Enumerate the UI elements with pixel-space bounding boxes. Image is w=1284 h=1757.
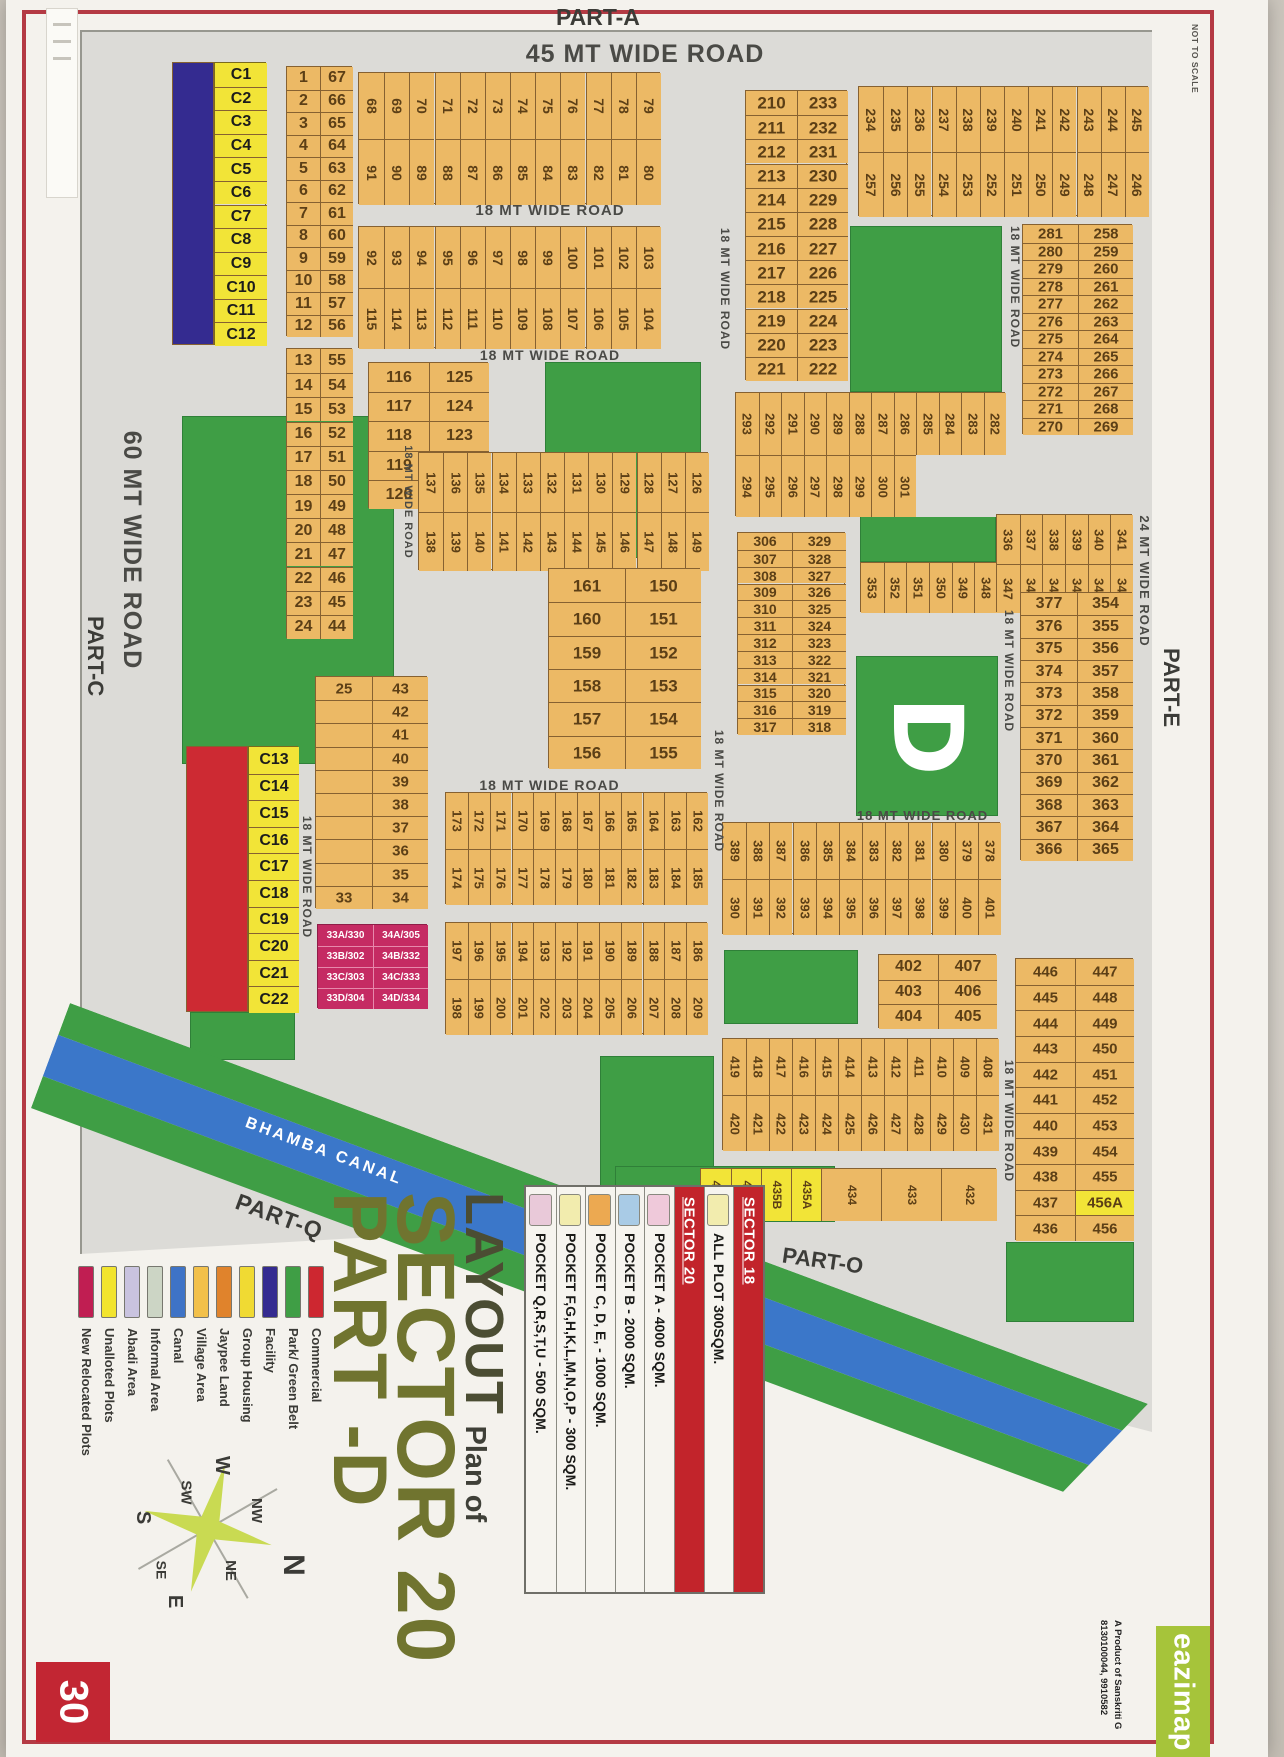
plot-cell: 289 (826, 393, 849, 455)
plot-cell: 262 (1078, 295, 1133, 313)
plot-cell: 359 (1077, 705, 1133, 727)
plot-cell: 403 (879, 980, 938, 1005)
plot-cell: 373 (1021, 682, 1077, 704)
plot-cell: 146 (612, 512, 636, 571)
plot-block-p258: 2812582802592792602782612772622762632752… (1022, 224, 1132, 434)
plot-cell: 260 (1078, 260, 1133, 278)
plot-cell: 172 (468, 793, 490, 849)
plot-cell: 19 (287, 494, 320, 518)
plot-cell: 401 (978, 879, 1001, 935)
scale-note: NOT TO SCALE (1186, 24, 1200, 104)
part-a-label: PART-A (556, 4, 640, 31)
plot-cell: 451 (1075, 1062, 1134, 1088)
plot-cell: 173 (446, 793, 468, 849)
plot-cell: 38 (372, 793, 428, 816)
plot-cell: 313 (738, 651, 792, 668)
plot-cell: 222 (797, 357, 848, 381)
plot-cell: 3 (287, 112, 320, 135)
plot-cell: 269 (1078, 418, 1133, 436)
plot-cell (316, 793, 372, 816)
plot-cell: 92 (359, 227, 384, 288)
plot-cell: 199 (468, 979, 490, 1035)
plot-cell: 327 (792, 567, 846, 584)
road-label: 18 MT WIDE ROAD (430, 202, 670, 219)
plot-cell: C3 (215, 110, 267, 134)
plot-cell: 33 (316, 886, 372, 909)
plot-cell: 84 (535, 139, 560, 205)
plot-cell: 366 (1021, 839, 1077, 861)
plot-cell: 42 (372, 700, 428, 723)
plot-block-b186: 1971961951941931921911901891881871861981… (445, 922, 707, 1034)
plot-cell: 393 (793, 879, 816, 935)
plot-block-c13: C13C14C15C16C17C18C19C20C21C22 (248, 746, 298, 1012)
plot-cell: 287 (871, 393, 894, 455)
plot-cell: C2 (215, 87, 267, 111)
plot-cell: 310 (738, 600, 792, 617)
plot-cell: 93 (384, 227, 409, 288)
plot-cell: 404 (879, 1004, 938, 1029)
plot-cell: 415 (815, 1039, 838, 1095)
plot-block-fac (172, 62, 214, 345)
pocket-text: POCKET B - 2000 SQM. (622, 1233, 638, 1389)
plot-cell: 70 (409, 73, 434, 139)
plot-cell: 268 (1078, 400, 1133, 418)
plot-cell: 158 (549, 669, 625, 702)
plot-block-b162: 1731721711701691681671661651641631621741… (445, 792, 707, 904)
plot-cell: 85 (510, 139, 535, 205)
plot-cell: 388 (746, 823, 769, 879)
plot-cell: 51 (320, 446, 353, 470)
plot-cell: 337 (1020, 515, 1043, 564)
plot-cell: 214 (746, 188, 797, 212)
plot-cell: 241 (1028, 87, 1052, 152)
plot-cell: 317 (738, 718, 792, 735)
plot-cell: 256 (883, 152, 907, 217)
plot-cell: 238 (956, 87, 980, 152)
plot-cell: 117 (369, 392, 429, 421)
plot-cell: 360 (1077, 727, 1133, 749)
plot-cell: 372 (1021, 705, 1077, 727)
plot-cell: 336 (997, 515, 1020, 564)
plot-cell: 75 (535, 73, 560, 139)
plot-cell: C9 (215, 252, 267, 276)
plot-cell: 159 (549, 636, 625, 669)
plot-cell: C20 (249, 933, 299, 960)
plot-cell: 349 (952, 563, 975, 613)
plot-cell: 229 (797, 188, 848, 212)
compass-sw-label: SW (178, 1480, 195, 1504)
plot-cell: 263 (1078, 313, 1133, 331)
plot-cell: 132 (540, 453, 564, 512)
legend-swatch (216, 1266, 232, 1318)
plot-cell: 274 (1023, 348, 1078, 366)
park-green-area (1006, 1242, 1134, 1322)
plot-cell: 55 (320, 349, 353, 373)
plot-cell: 384 (839, 823, 862, 879)
plot-cell: C19 (249, 907, 299, 934)
plot-cell: 201 (512, 979, 534, 1035)
plot-cell: 283 (961, 393, 984, 455)
block-open-edge (916, 455, 1006, 517)
plot-cell: 402 (879, 955, 938, 980)
plot-cell: 204 (577, 979, 599, 1035)
plot-cell: 50 (320, 470, 353, 494)
plot-cell: 368 (1021, 794, 1077, 816)
plot-cell: 107 (560, 288, 585, 349)
legend-swatch (262, 1266, 278, 1318)
plot-block-redb (186, 746, 248, 1012)
plot-cell: 279 (1023, 260, 1078, 278)
plot-cell: 219 (746, 309, 797, 333)
plot-cell: 180 (577, 849, 599, 905)
plot-cell: 431 (976, 1095, 999, 1151)
plot-cell: 25 (316, 677, 372, 700)
plot-cell: 153 (625, 669, 701, 702)
plot-cell: 90 (384, 139, 409, 205)
pocket-text: POCKET Q,R,S,T,U - 500 SQM. (533, 1233, 549, 1434)
plot-cell: 17 (287, 446, 320, 470)
plot-cell: 383 (862, 823, 885, 879)
plot-cell: 248 (1077, 152, 1101, 217)
compass-n-label: N (276, 1554, 310, 1576)
plot-block-p1: 167266365464563662761860959105811571256 (286, 66, 352, 336)
plot-cell: 340 (1088, 515, 1111, 564)
plot-block-p210: 2102332112322122312132302142292152282162… (745, 90, 847, 380)
plot-cell: 437 (1016, 1190, 1075, 1216)
plot-cell: 44 (320, 615, 353, 639)
pocket-swatch (618, 1194, 641, 1226)
plot-cell: 138 (419, 512, 443, 571)
plot-cell: 357 (1077, 660, 1133, 682)
plot-cell (316, 747, 372, 770)
plot-cell: 73 (485, 73, 510, 139)
plot-cell: 202 (533, 979, 555, 1035)
pocket-sector-header: SECTOR 18 (733, 1187, 763, 1592)
plot-cell: 320 (792, 685, 846, 702)
plot-cell: 47 (320, 542, 353, 566)
plot-cell: 434 (821, 1169, 881, 1221)
plot-cell: 351 (906, 563, 929, 613)
plot-cell: 40 (372, 747, 428, 770)
plot-cell: C6 (215, 181, 267, 205)
plot-cell: 82 (586, 139, 611, 205)
photo-of-layout-plan: { "page": { "number": "30", "scale_note"… (0, 0, 1284, 1757)
plot-cell: 364 (1077, 816, 1133, 838)
plot-cell: C15 (249, 800, 299, 827)
plot-cell: 211 (746, 115, 797, 139)
plot-cell: 297 (804, 455, 827, 517)
plot-cell: 432 (941, 1169, 997, 1221)
plot-cell: 277 (1023, 295, 1078, 313)
plot-cell: 179 (555, 849, 577, 905)
plot-cell: 89 (409, 139, 434, 205)
plot-cell: 377 (1021, 593, 1077, 615)
plot-cell: 166 (599, 793, 621, 849)
compass-s-label: S (131, 1511, 154, 1524)
plot-cell: 259 (1078, 243, 1133, 261)
plot-cell: 218 (746, 284, 797, 308)
plot-cell: 147 (637, 512, 661, 571)
plot-cell: 361 (1077, 749, 1133, 771)
plot-cell: 124 (429, 392, 489, 421)
legend-swatch (170, 1266, 186, 1318)
plot-cell: 18 (287, 470, 320, 494)
plot-cell: 296 (781, 455, 804, 517)
plot-cell: C22 (249, 986, 299, 1013)
plot-cell: 242 (1052, 87, 1076, 152)
plot-cell: 281 (1023, 225, 1078, 243)
plot-block-b234: 2342352362372382392402412422432442452572… (858, 86, 1148, 216)
plot-cell: 203 (555, 979, 577, 1035)
plot-cell: 130 (588, 453, 612, 512)
plot-cell: 80 (636, 139, 661, 205)
plot-cell: 395 (839, 879, 862, 935)
plot-cell: 164 (643, 793, 665, 849)
plot-cell: 175 (468, 849, 490, 905)
plot-cell: 374 (1021, 660, 1077, 682)
plot-cell: 381 (908, 823, 931, 879)
plot-cell: 291 (781, 393, 804, 455)
pocket-row: POCKET A - 4000 SQM. (645, 1187, 675, 1592)
plot-cell: 127 (661, 453, 685, 512)
plot-cell: 428 (907, 1095, 930, 1151)
plot-cell: 113 (409, 288, 434, 349)
plot-cell: 177 (512, 849, 534, 905)
plot-cell: 370 (1021, 749, 1077, 771)
title-block: LAYOUT Plan of SECTOR 20 PART -D (330, 1192, 508, 1752)
plot-cell: 33D/304 (318, 988, 373, 1009)
plot-cell: 282 (984, 393, 1007, 455)
plot-cell: 417 (769, 1039, 792, 1095)
plot-cell: 245 (1125, 87, 1149, 152)
plot-cell: 125 (429, 363, 489, 392)
plot-cell: 48 (320, 518, 353, 542)
plot-cell: 399 (932, 879, 955, 935)
plot-cell: 295 (759, 455, 782, 517)
plot-cell: 101 (586, 227, 611, 288)
plot-cell: C7 (215, 205, 267, 229)
road-label: 18 MT WIDE ROAD (432, 777, 667, 793)
plot-cell: 416 (792, 1039, 815, 1095)
plot-cell: 410 (930, 1039, 953, 1095)
plot-cell: 398 (908, 879, 931, 935)
plot-cell: 441 (1016, 1087, 1075, 1113)
plot-cell: 154 (625, 702, 701, 735)
plot-cell: 155 (625, 736, 701, 769)
plot-cell: 227 (797, 236, 848, 260)
plot-cell: 195 (490, 923, 512, 979)
plot-cell: 57 (320, 292, 353, 315)
plot-cell: 186 (686, 923, 708, 979)
plot-cell: 292 (759, 393, 782, 455)
pocket-text: POCKET A - 4000 SQM. (652, 1233, 668, 1388)
pocket-text: ALL PLOT 300SQM. (711, 1233, 727, 1364)
plot-cell: 273 (1023, 365, 1078, 383)
plot-cell: 69 (384, 73, 409, 139)
plot-cell: 87 (460, 139, 485, 205)
plot-cell: 249 (1052, 152, 1076, 217)
plot-cell: 436 (1016, 1215, 1075, 1241)
plot-cell: 225 (797, 284, 848, 308)
plot-cell: 36 (372, 839, 428, 862)
plot-cell: 39 (372, 770, 428, 793)
pocket-row: ALL PLOT 300SQM. (704, 1187, 734, 1592)
plot-cell: 104 (636, 288, 661, 349)
pocket-text: POCKET C, D, E, - 1000 SQM. (593, 1233, 609, 1428)
plot-cell: 306 (738, 533, 792, 550)
plot-cell: 341 (1110, 515, 1133, 564)
plot-cell: 208 (664, 979, 686, 1035)
plot-cell: 60 (320, 225, 353, 248)
plot-cell: 221 (746, 357, 797, 381)
legend-label: Park/ Green Belt (285, 1328, 301, 1578)
plot-cell: 405 (938, 1004, 997, 1029)
plot-cell: 355 (1077, 615, 1133, 637)
plot-cell: 257 (859, 152, 883, 217)
road-label: 18 MT WIDE ROAD (1000, 596, 1016, 746)
plot-cell: C18 (249, 880, 299, 907)
pocket-size-table: SECTOR 18ALL PLOT 300SQM.SECTOR 20POCKET… (524, 1185, 765, 1594)
plot-cell: 354 (1077, 593, 1133, 615)
plot-cell: 105 (611, 288, 636, 349)
plot-block-r348: 353352351350349348 (860, 562, 996, 612)
plot-cell: 252 (980, 152, 1004, 217)
plot-cell: 24 (287, 615, 320, 639)
plot-cell: 102 (611, 227, 636, 288)
plot-cell (316, 770, 372, 793)
plot-cell: 139 (443, 512, 467, 571)
plot-cell: 100 (560, 227, 585, 288)
plot-cell: 41 (372, 723, 428, 746)
plot-cell: 149 (685, 512, 709, 571)
plot-cell: 96 (460, 227, 485, 288)
plot-cell: 220 (746, 333, 797, 357)
plot-cell: 322 (792, 651, 846, 668)
plot-cell: 128 (637, 453, 661, 512)
plot-cell: 141 (492, 512, 516, 571)
plot-cell: 53 (320, 397, 353, 421)
plot-cell: 112 (435, 288, 460, 349)
plot-cell: 301 (894, 455, 917, 517)
plot-cell: 131 (564, 453, 588, 512)
plot-block-p156: 161150160151159152158153157154156155 (548, 568, 700, 768)
plot-cell: 20 (287, 518, 320, 542)
plot-cell: 187 (664, 923, 686, 979)
plot-cell: 160 (549, 602, 625, 635)
plot-cell: 34D/334 (373, 988, 428, 1009)
plot-cell: C8 (215, 228, 267, 252)
pocket-swatch (559, 1194, 582, 1226)
plot-block-b92: 9293949596979899100101102103115114113112… (358, 226, 660, 348)
plot-cell: 386 (793, 823, 816, 879)
pocket-swatch (648, 1194, 671, 1226)
plot-cell: 376 (1021, 615, 1077, 637)
plot-cell: 45 (320, 591, 353, 615)
plot-cell: 190 (599, 923, 621, 979)
plot-cell: C11 (215, 299, 267, 323)
brand-logo: eazimap (1156, 1626, 1210, 1757)
plot-cell: 379 (955, 823, 978, 879)
plot-cell: 196 (468, 923, 490, 979)
pocket-text: POCKET F,G,H,K,L,M,N,O,P - 300 SQM. (563, 1233, 579, 1490)
plot-cell: 311 (738, 617, 792, 634)
plot-cell: 365 (1077, 839, 1133, 861)
plot-cell: 197 (446, 923, 468, 979)
plot-cell: 286 (894, 393, 917, 455)
plot-cell: 456 (1075, 1215, 1134, 1241)
plot-cell: C1 (215, 63, 267, 87)
road-label: 18 MT WIDE ROAD (710, 696, 726, 886)
plot-cell: 353 (861, 563, 884, 613)
part-c-label: PART-C (82, 616, 108, 696)
road-label: 24 MT WIDE ROAD (1132, 496, 1152, 666)
plot-cell: 74 (510, 73, 535, 139)
plot-cell: 21 (287, 542, 320, 566)
plot-cell: 323 (792, 634, 846, 651)
plot-block-p402: 402407403406404405 (878, 954, 996, 1028)
plot-block-c1: C1C2C3C4C5C6C7C8C9C10C11C12 (214, 62, 266, 345)
plot-cell: C14 (249, 774, 299, 801)
pocket-row: POCKET Q,R,S,T,U - 500 SQM. (526, 1187, 556, 1592)
plot-cell: 33C/303 (318, 967, 373, 988)
plot-cell: 224 (797, 309, 848, 333)
plot-cell: 288 (849, 393, 872, 455)
plot-cell: 145 (588, 512, 612, 571)
plot-cell: 298 (826, 455, 849, 517)
plot-cell: 114 (384, 288, 409, 349)
plot-cell: 34C/333 (373, 967, 428, 988)
plot-cell: 98 (510, 227, 535, 288)
plot-cell: 387 (769, 823, 792, 879)
plot-cell: 446 (1016, 959, 1075, 985)
plot-cell: 110 (485, 288, 510, 349)
plot-cell: 232 (797, 115, 848, 139)
plot-cell: 421 (746, 1095, 769, 1151)
park-green-area (190, 1012, 295, 1060)
plot-cell: 76 (560, 73, 585, 139)
plot-cell: 140 (467, 512, 491, 571)
plot-cell: 15 (287, 397, 320, 421)
plot-cell: 108 (535, 288, 560, 349)
plot-cell: 63 (320, 157, 353, 180)
plot-block-b282: 2932922912902892882872862852842832822942… (735, 392, 1005, 516)
plot-cell: 207 (643, 979, 665, 1035)
corner-sticker (46, 8, 78, 198)
plot-cell: 14 (287, 373, 320, 397)
plot-cell: 184 (664, 849, 686, 905)
plot-cell: 439 (1016, 1138, 1075, 1164)
plot-cell: 244 (1101, 87, 1125, 152)
legend-swatch (124, 1266, 140, 1318)
plot-cell: 424 (815, 1095, 838, 1151)
plot-cell: 454 (1075, 1138, 1134, 1164)
plot-cell: C12 (215, 322, 267, 346)
plot-cell: 183 (643, 849, 665, 905)
plot-cell: 34 (372, 886, 428, 909)
plot-cell: 194 (512, 923, 534, 979)
plot-cell: 4 (287, 135, 320, 158)
compass-se-label: SE (153, 1561, 169, 1580)
plot-cell: 9 (287, 247, 320, 270)
plot-cell: 72 (460, 73, 485, 139)
plot-cell: 234 (859, 87, 883, 152)
legend-swatch (78, 1266, 94, 1318)
plot-cell: 329 (792, 533, 846, 550)
plot-cell: 97 (485, 227, 510, 288)
plot-cell: 266 (1078, 365, 1133, 383)
plot-cell: 126 (685, 453, 709, 512)
plot-cell: 440 (1016, 1113, 1075, 1139)
